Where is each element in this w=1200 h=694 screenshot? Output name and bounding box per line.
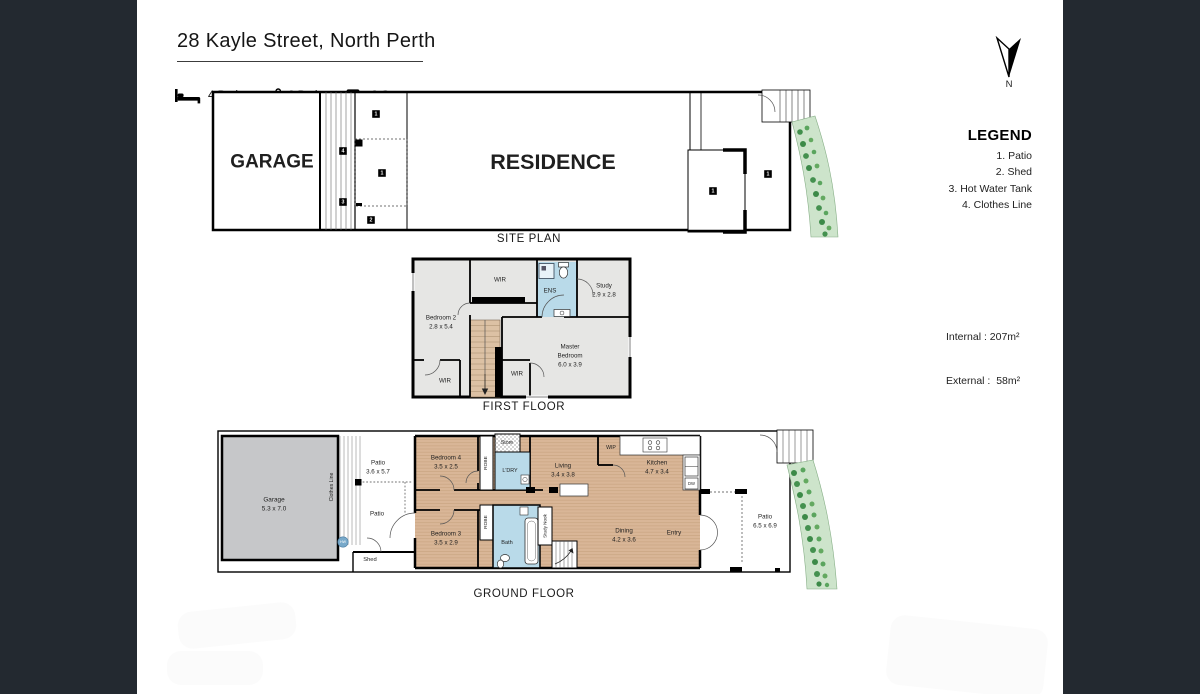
page-title: 28 Kayle Street, North Perth [177, 30, 436, 53]
watermark-blob [176, 601, 297, 650]
room-label-living: Living [555, 463, 572, 470]
room-label-garage: Garage [263, 497, 285, 504]
legend: LEGEND 1. Patio 2. Shed 3. Hot Water Tan… [900, 127, 1032, 214]
room-label-bedroom2: Bedroom 2 [426, 315, 457, 322]
room-label-master-1: Master [561, 344, 580, 351]
svg-text:1: 1 [381, 170, 384, 176]
room-dims-bedroom2: 2.8 x 5.4 [429, 324, 453, 331]
site-porch-steps [758, 90, 810, 122]
room-dims-bedroom3: 3.5 x 2.9 [434, 540, 458, 547]
ground-floor-plan: Clothes Line HW Shed [213, 423, 843, 595]
svg-text:2: 2 [370, 217, 373, 223]
room-dims-kitchen: 4.7 x 3.4 [645, 469, 669, 476]
room-label-shed: Shed [363, 557, 377, 563]
room-label-entry: Entry [667, 530, 682, 537]
dishwasher-label: DW [688, 481, 695, 486]
room-dims-bedroom4: 3.5 x 2.5 [434, 464, 458, 471]
external-area: External : 58m² [946, 374, 1020, 389]
room-dims-living: 3.4 x 3.8 [551, 472, 575, 479]
internal-area: Internal : 207m² [946, 330, 1020, 345]
room-label-dining: Dining [615, 528, 633, 535]
svg-text:4: 4 [342, 148, 345, 154]
room-dims-patio-rear: 3.6 x 5.7 [366, 469, 390, 476]
floor-areas: Internal : 207m² External : 58m² [946, 301, 1020, 418]
first-floor-plan: Bedroom 2 2.8 x 5.4 WIR ENS Study 2.9 x … [406, 251, 636, 403]
room-dims-master: 6.0 x 3.9 [558, 362, 582, 369]
room-label-store: Store [501, 440, 514, 446]
room-label-study: Study [596, 283, 613, 290]
site-plan-label: SITE PLAN [419, 233, 639, 245]
room-label-patio-mid: Patio [370, 511, 385, 518]
room-dims-patio-front: 6.5 x 6.9 [753, 523, 777, 530]
site-residence-label: RESIDENCE [490, 150, 615, 174]
watermark-blob [885, 614, 1049, 694]
hot-water-label: HW [340, 540, 347, 544]
svg-text:3: 3 [342, 199, 345, 205]
site-marker-shed: 2 [367, 216, 375, 224]
room-label-bath: Bath [501, 540, 513, 546]
svg-text:1: 1 [767, 171, 770, 177]
legend-item-patio: 1. Patio [900, 148, 1032, 164]
bathroom [493, 505, 540, 568]
room-label-study-nook: Study Nook [543, 513, 548, 537]
north-label: N [1006, 79, 1013, 90]
room-label-kitchen: Kitchen [647, 460, 668, 467]
ground-floor-stairs [552, 541, 577, 568]
svg-text:1: 1 [375, 111, 378, 117]
room-dims-dining: 4.2 x 3.6 [612, 537, 636, 544]
site-garden-bed [792, 116, 838, 237]
floorplan-page: 28 Kayle Street, North Perth 4 Bed 2 Bat… [0, 0, 1200, 694]
bed-icon [175, 88, 201, 104]
legend-title: LEGEND [900, 127, 1032, 144]
ground-floor-label: GROUND FLOOR [414, 588, 634, 600]
first-floor-label: FIRST FLOOR [414, 401, 634, 413]
room-label-wir-mid: WIR [511, 371, 524, 378]
site-garage-label: GARAGE [230, 152, 313, 173]
room-label-ens: ENS [544, 288, 557, 295]
room-label-laundry: L'DRY [502, 468, 518, 474]
room-label-robe4: ROBE [483, 456, 489, 470]
hot-water-unit: HW [338, 537, 348, 547]
site-marker-patio-2: 1 [378, 169, 386, 177]
room-dims-study: 2.9 x 2.8 [592, 292, 616, 299]
site-marker-hot-water-tank: 3 [339, 198, 347, 206]
site-marker-patio-3: 1 [709, 187, 717, 195]
legend-item-hot-water-tank: 3. Hot Water Tank [900, 181, 1032, 197]
north-arrow: N [993, 36, 1025, 90]
site-marker-clothes-line: 4 [339, 147, 347, 155]
ground-garden-bed [787, 460, 837, 589]
room-label-patio-front: Patio [758, 514, 773, 521]
legend-item-clothes-line: 4. Clothes Line [900, 197, 1032, 213]
room-label-robe3: ROBE [483, 515, 489, 529]
legend-item-shed: 2. Shed [900, 164, 1032, 180]
room-label-master-2: Bedroom [557, 353, 582, 360]
left-dark-band [0, 0, 137, 694]
room-label-wir-top: WIR [494, 277, 507, 284]
right-dark-band [1063, 0, 1200, 694]
room-label-bedroom4: Bedroom 4 [431, 455, 462, 462]
room-label-patio-rear: Patio [371, 460, 386, 467]
room-label-bedroom3: Bedroom 3 [431, 531, 462, 538]
site-marker-patio-4: 1 [764, 170, 772, 178]
watermark-blob [167, 651, 263, 685]
room-label-clothes-line: Clothes Line [329, 472, 335, 501]
room-label-wip: WIP [606, 445, 616, 451]
svg-text:1: 1 [712, 188, 715, 194]
site-plan: 1 4 1 3 2 1 1 GARAGE RESIDENCE [208, 86, 848, 250]
room-dims-garage: 5.3 x 7.0 [262, 506, 287, 513]
site-marker-patio-1: 1 [372, 110, 380, 118]
title-underline [177, 61, 423, 62]
room-label-wir-left: WIR [439, 378, 452, 385]
